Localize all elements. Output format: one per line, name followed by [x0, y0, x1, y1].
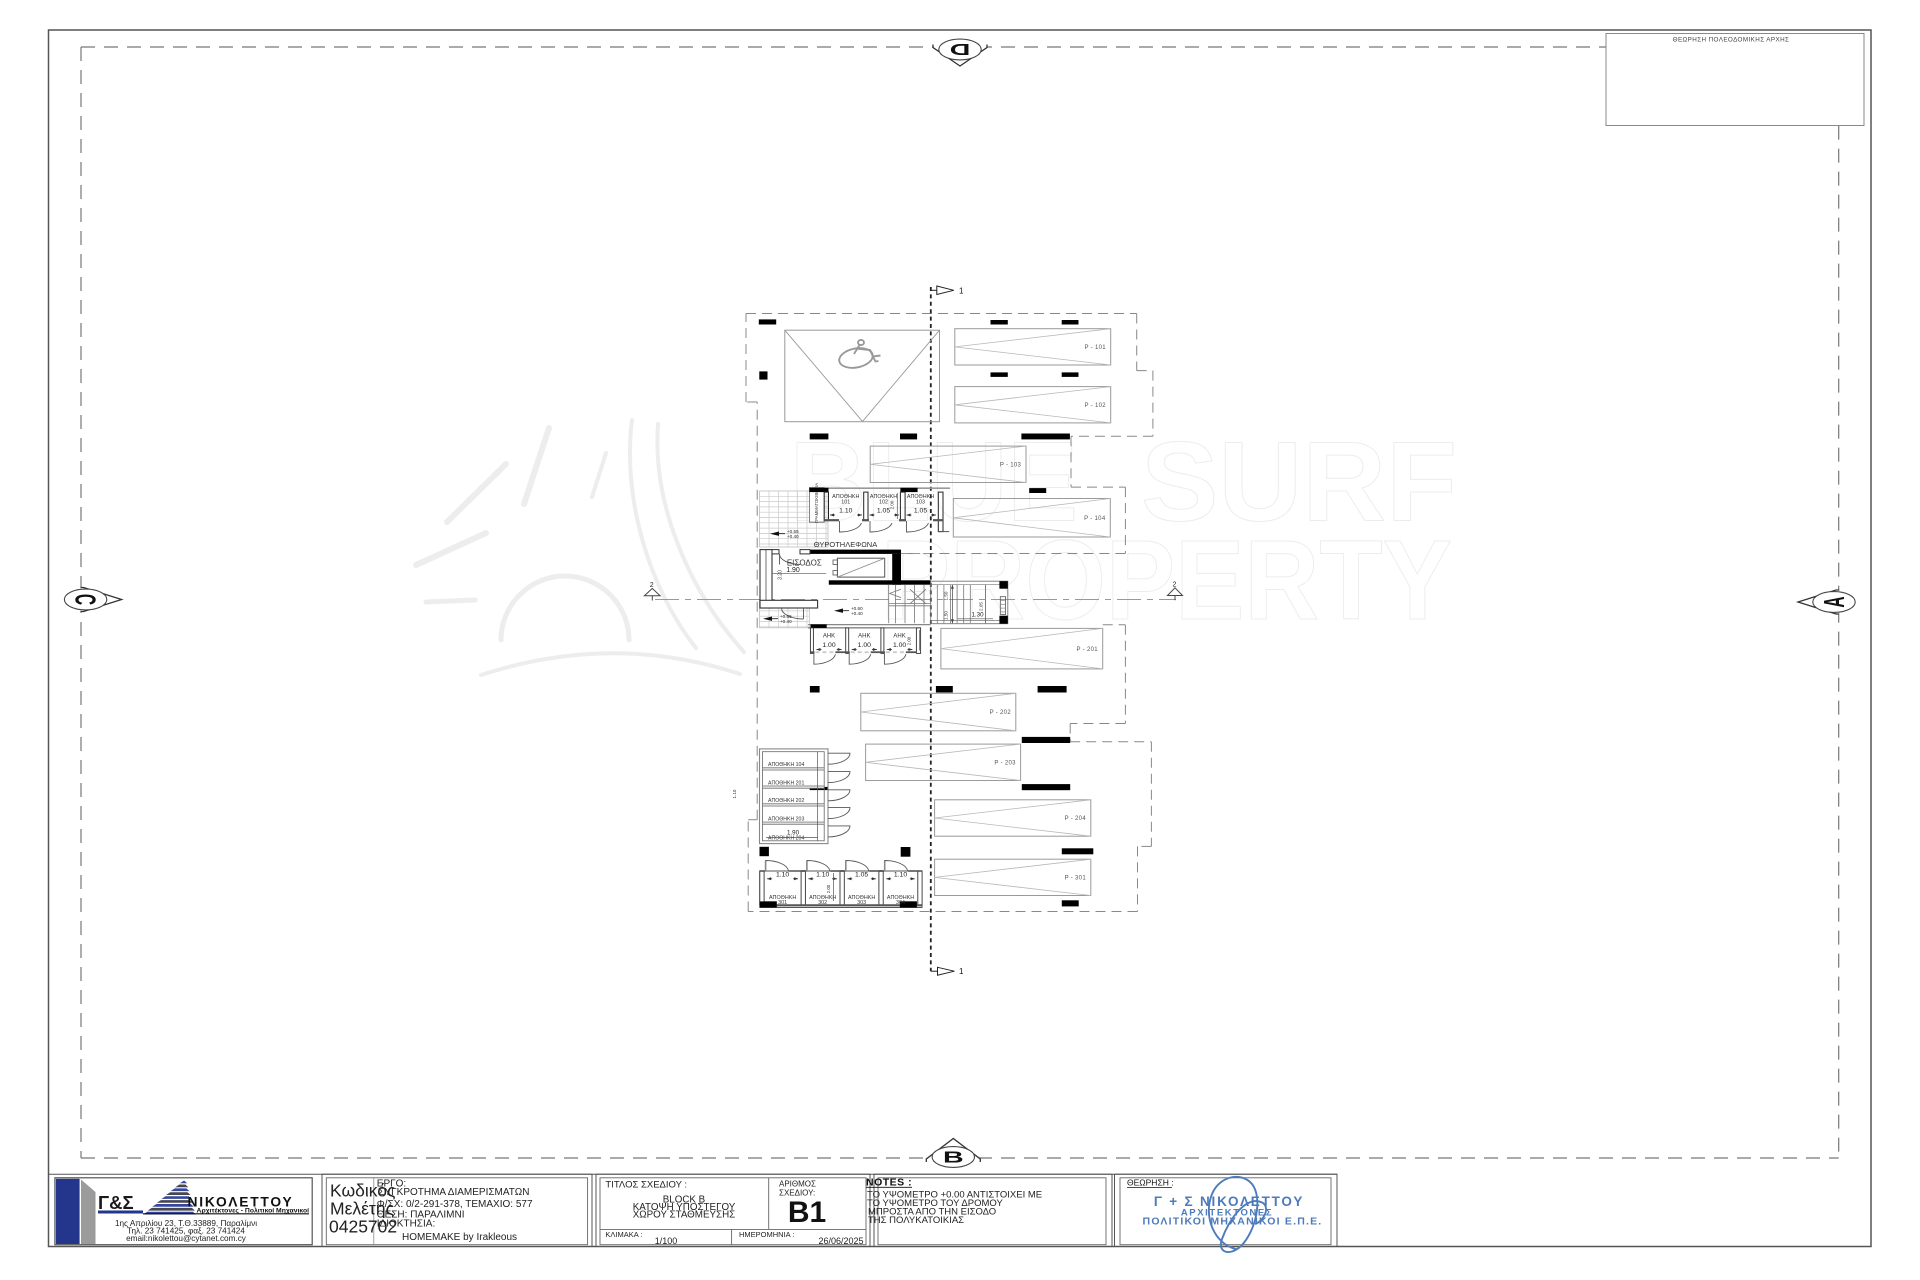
- svg-text:ΧΩΡΟΥ ΣΤΑΘΜΕΥΣΗΣ: ΧΩΡΟΥ ΣΤΑΘΜΕΥΣΗΣ: [633, 1210, 735, 1221]
- svg-text:B: B: [943, 1148, 964, 1165]
- svg-text:ΙΔΙΟΚΤΗΣΙΑ:: ΙΔΙΟΚΤΗΣΙΑ:: [377, 1218, 435, 1229]
- svg-text:1.10: 1.10: [732, 789, 737, 798]
- svg-text:304: 304: [896, 900, 905, 906]
- svg-text:1.10: 1.10: [839, 508, 852, 515]
- svg-text:1.10: 1.10: [816, 871, 829, 878]
- svg-text:ΑΡΙΘΜΟΣ: ΑΡΙΘΜΟΣ: [779, 1179, 816, 1188]
- svg-text:103: 103: [916, 500, 925, 506]
- svg-text:ΑΗΚ: ΑΗΚ: [823, 634, 835, 640]
- svg-text:P - 203: P - 203: [994, 761, 1016, 767]
- svg-text:1.10: 1.10: [776, 871, 789, 878]
- svg-text:2: 2: [1172, 582, 1176, 589]
- svg-text:ΑΠΟΘΗΚΗ 202: ΑΠΟΘΗΚΗ 202: [768, 798, 804, 804]
- svg-text:3.20: 3.20: [778, 570, 784, 580]
- svg-text:HOMEMAKE by Irakleous: HOMEMAKE by Irakleous: [402, 1232, 517, 1243]
- svg-text:+0.40: +0.40: [787, 534, 799, 539]
- svg-text:ΑΗΚ: ΑΗΚ: [858, 634, 870, 640]
- svg-text:1.50: 1.50: [944, 591, 949, 600]
- svg-text:A: A: [1818, 596, 1850, 607]
- svg-text:Αρχιτέκτονες - Πολιτικοί Μηχαν: Αρχιτέκτονες - Πολιτικοί Μηχανικοί: [197, 1207, 310, 1215]
- svg-text:C: C: [69, 594, 101, 605]
- svg-text:ΚΛΙΜΑΚΑ :: ΚΛΙΜΑΚΑ :: [605, 1230, 642, 1239]
- svg-text:1.00: 1.00: [858, 642, 871, 649]
- svg-text:2.05: 2.05: [979, 602, 984, 611]
- svg-text:+0.40: +0.40: [851, 611, 863, 616]
- svg-text:ΣΥΓΚΡΟΤΗΜΑ ΔΙΑΜΕΡΙΣΜΑΤΩΝ: ΣΥΓΚΡΟΤΗΜΑ ΔΙΑΜΕΡΙΣΜΑΤΩΝ: [378, 1187, 529, 1198]
- svg-text:2: 2: [650, 582, 654, 589]
- svg-text:P - 201: P - 201: [1077, 647, 1099, 653]
- svg-text:ΑΠΟΘΗΚΗ 201: ΑΠΟΘΗΚΗ 201: [768, 780, 804, 786]
- svg-text:ΑΗΚ: ΑΗΚ: [893, 634, 905, 640]
- svg-text:1.05: 1.05: [855, 871, 868, 878]
- svg-text:B1: B1: [788, 1196, 826, 1229]
- svg-text:1: 1: [959, 967, 964, 976]
- svg-text:D: D: [950, 41, 971, 58]
- svg-text:P - 104: P - 104: [1084, 516, 1106, 522]
- svg-text:302: 302: [818, 900, 827, 906]
- svg-text:101: 101: [841, 500, 850, 506]
- svg-text:303: 303: [857, 900, 866, 906]
- svg-text:Φ/ΣΧ: 0/2-291-378, ΤΕΜΑΧΙΟ: 57: Φ/ΣΧ: 0/2-291-378, ΤΕΜΑΧΙΟ: 577: [377, 1199, 533, 1210]
- svg-text:1.90: 1.90: [786, 567, 800, 574]
- svg-text:2.00: 2.00: [826, 884, 831, 893]
- svg-text:NOTES :: NOTES :: [866, 1177, 912, 1189]
- svg-text:2.00: 2.00: [907, 636, 912, 645]
- svg-text:ΤΗΣ ΠΟΛΥΚΑΤΟΙΚΙΑΣ: ΤΗΣ ΠΟΛΥΚΑΤΟΙΚΙΑΣ: [868, 1215, 964, 1226]
- svg-text:P - 101: P - 101: [1085, 345, 1107, 351]
- svg-text:ΘΕΩΡΗΣΗ :: ΘΕΩΡΗΣΗ :: [1127, 1178, 1174, 1188]
- svg-text:ΘΥΡΟΤΗΛΕΦΩΝΑ: ΘΥΡΟΤΗΛΕΦΩΝΑ: [814, 540, 877, 549]
- svg-text:1.00: 1.00: [893, 642, 906, 649]
- svg-text:ΗΜΕΡΟΜΗΝΙΑ :: ΗΜΕΡΟΜΗΝΙΑ :: [739, 1230, 794, 1239]
- svg-text:1.00: 1.00: [822, 642, 835, 649]
- svg-text:26/06/2025: 26/06/2025: [818, 1236, 863, 1246]
- svg-text:Γ&Σ: Γ&Σ: [98, 1192, 134, 1213]
- svg-text:301: 301: [778, 900, 787, 906]
- svg-text:P - 202: P - 202: [990, 710, 1012, 716]
- svg-text:ΑΠΟΘΗΚΗ 203: ΑΠΟΘΗΚΗ 203: [768, 817, 804, 823]
- svg-text:P - 102: P - 102: [1085, 403, 1107, 409]
- svg-text:ΤΙΤΛΟΣ ΣΧΕΔΙΟΥ :: ΤΙΤΛΟΣ ΣΧΕΔΙΟΥ :: [605, 1179, 687, 1190]
- svg-text:2.00: 2.00: [890, 500, 895, 509]
- svg-text:ΑΠΟΘΗΚΗ 104: ΑΠΟΘΗΚΗ 104: [768, 762, 804, 768]
- svg-text:1: 1: [959, 286, 964, 295]
- svg-text:1.05: 1.05: [914, 508, 927, 515]
- svg-text:1.05: 1.05: [877, 508, 890, 515]
- svg-text:email:nikolettou@cytanet.com.c: email:nikolettou@cytanet.com.cy: [126, 1234, 247, 1243]
- svg-text:1.50: 1.50: [944, 611, 949, 620]
- svg-text:ΘΕΩΡΗΣΗ ΠΟΛΕΟΔΟΜΙΚΗΣ ΑΡΧΗΣ: ΘΕΩΡΗΣΗ ΠΟΛΕΟΔΟΜΙΚΗΣ ΑΡΧΗΣ: [1673, 37, 1790, 44]
- svg-text:1.30: 1.30: [971, 612, 984, 619]
- svg-text:P - 204: P - 204: [1065, 816, 1087, 822]
- svg-text:+0.40: +0.40: [780, 619, 792, 624]
- svg-text:P - 301: P - 301: [1065, 876, 1087, 882]
- svg-text:P - 103: P - 103: [1000, 463, 1022, 469]
- svg-text:1.90: 1.90: [787, 830, 800, 837]
- svg-text:1.10: 1.10: [894, 871, 907, 878]
- svg-text:1/100: 1/100: [655, 1236, 678, 1246]
- svg-text:102: 102: [879, 500, 888, 506]
